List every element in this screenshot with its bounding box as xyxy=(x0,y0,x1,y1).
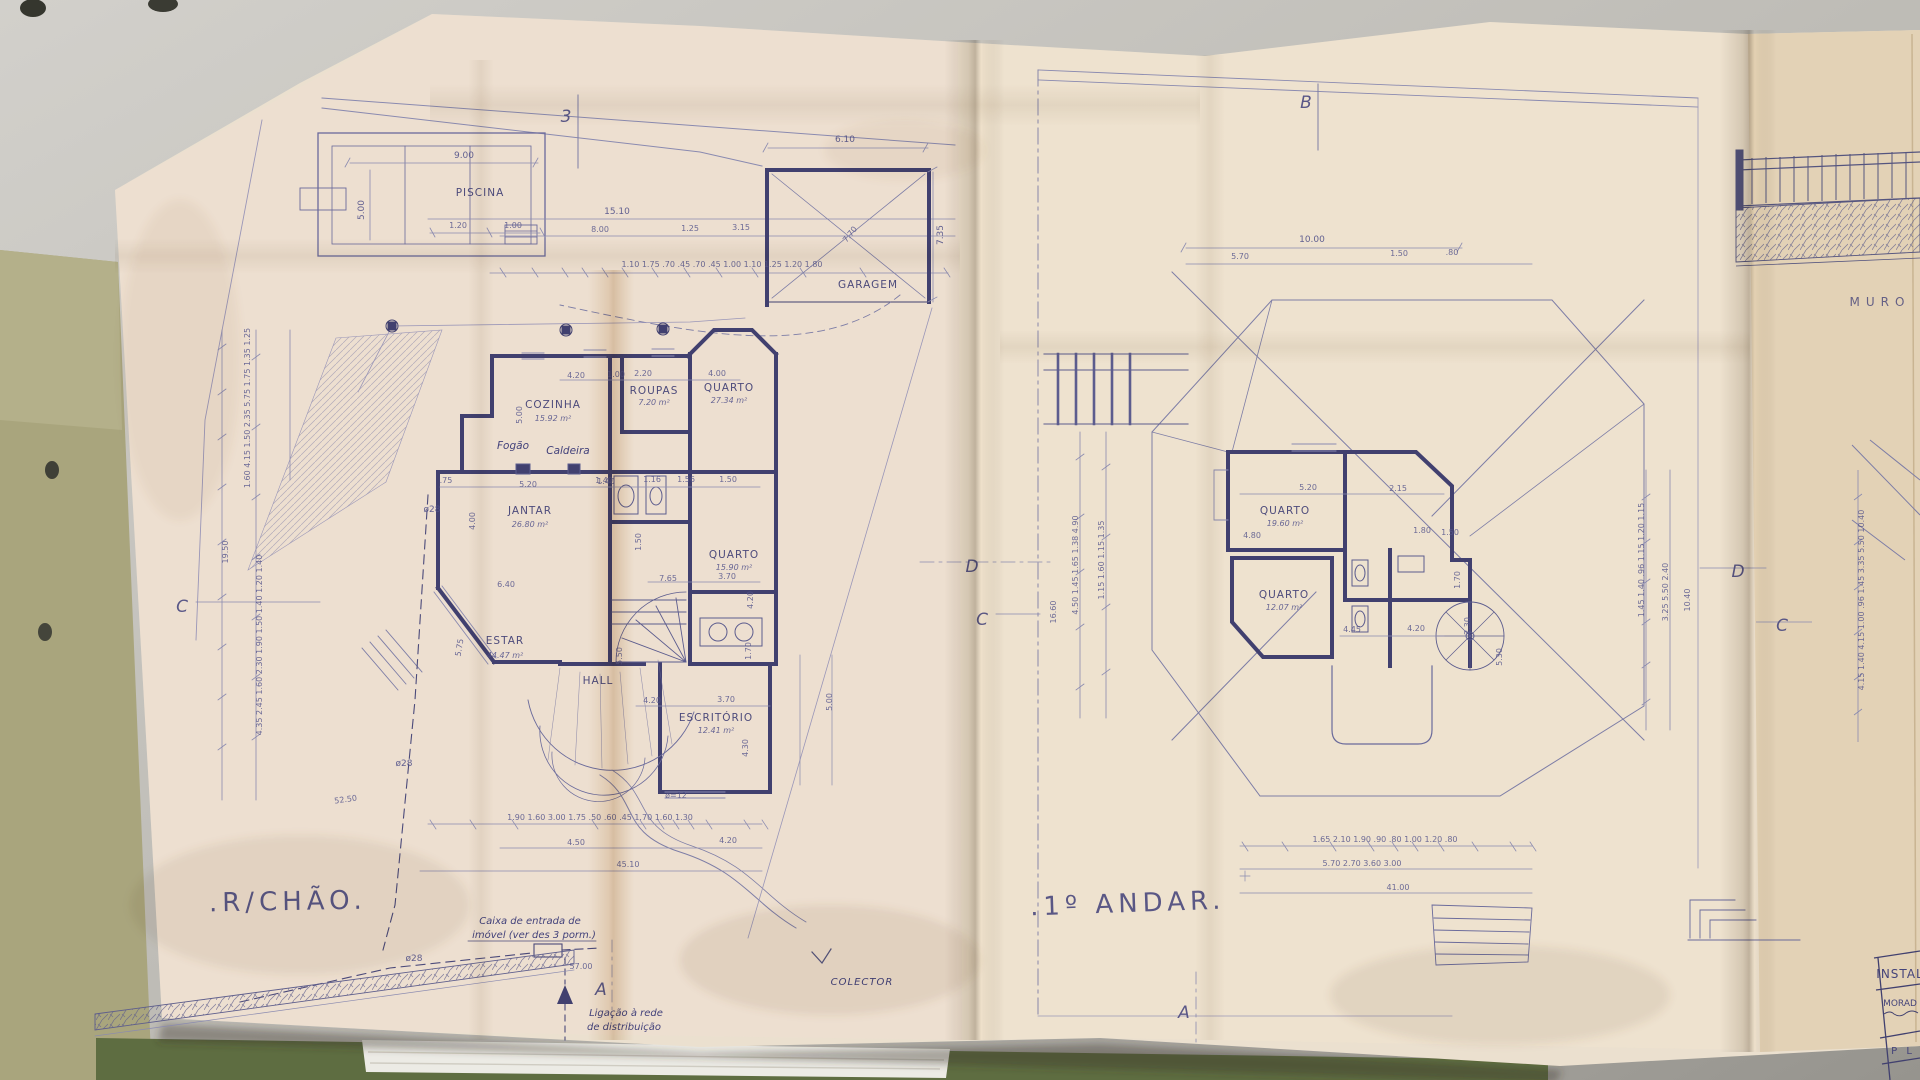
dim-chain: 19.50 xyxy=(221,541,230,564)
room-r-quarto1: QUARTO xyxy=(1260,505,1310,517)
titleblock-row2: MORAD xyxy=(1883,999,1917,1009)
marker-b: B xyxy=(1300,93,1312,113)
dim: 4.80 xyxy=(1243,531,1261,540)
dim: 4.20 xyxy=(746,591,755,609)
room-quarto1: QUARTO xyxy=(704,382,754,394)
dim: 3.70 xyxy=(718,572,736,581)
dim: 6.40 xyxy=(497,580,515,589)
room-roupas-area: 7.20 m² xyxy=(638,398,670,407)
dim: 41.00 xyxy=(1387,883,1410,892)
dim: 5.00 xyxy=(825,693,834,711)
marker-c-far: C xyxy=(1776,616,1788,636)
dim: 15.10 xyxy=(604,207,630,217)
room-escritorio-area: 12.41 m² xyxy=(698,726,735,735)
room-escritorio: ESCRITÓRIO xyxy=(679,711,753,724)
marker-c-left: C xyxy=(176,597,188,617)
dim-chain: 1.15 1.60 1.15 1.35 xyxy=(1097,521,1106,600)
dim: 1.50 xyxy=(1441,528,1459,537)
dim: 4.45 xyxy=(1343,625,1361,634)
dim-chain: 5.70 2.70 3.60 3.00 xyxy=(1323,859,1402,868)
caldeira-label: Caldeira xyxy=(546,445,589,457)
dim-chain: 1.45 1.40 .96 1.15 1.20 1.15 xyxy=(1637,503,1646,618)
blueprint-photo-svg: 3 PISCINA 9.00 5.00 1.20 1.00 15.10 8.00… xyxy=(0,0,1920,1080)
dim: 3.70 xyxy=(717,695,735,704)
o28-b: ø28 xyxy=(396,759,413,769)
room-jantar-area: 26.80 m² xyxy=(512,520,549,529)
dim: 5.30 xyxy=(1495,648,1504,666)
dim: 4.20 xyxy=(719,836,737,845)
dim: 5.00 xyxy=(357,200,367,220)
dim-chain: 3.25 5.50 2.40 xyxy=(1661,563,1670,622)
caixa-note-1: Caixa de entrada de xyxy=(479,916,581,927)
binder-hole xyxy=(45,461,59,479)
dim: .75 xyxy=(440,476,453,485)
room-quarto2-area: 15.90 m² xyxy=(716,563,753,572)
dim: 1.00 xyxy=(504,221,522,230)
titleblock-row3: P L xyxy=(1891,1046,1915,1057)
dim: 2.20 xyxy=(634,369,652,378)
dim: 10.40 xyxy=(1683,589,1692,612)
dim: 5.00 xyxy=(515,406,524,424)
room-r-quarto1-area: 19.60 m² xyxy=(1267,519,1304,528)
dim: 2.30 xyxy=(1463,617,1472,635)
dim: 10.00 xyxy=(1299,235,1325,245)
room-r-quarto2-area: 12.07 m² xyxy=(1266,603,1303,612)
dim: 5.70 xyxy=(1231,252,1249,261)
titleblock-row1: INSTAL xyxy=(1876,967,1920,981)
marker-a-right: A xyxy=(1177,1003,1190,1023)
dim: 7.65 xyxy=(659,574,677,583)
dim: 4.30 xyxy=(741,739,750,757)
dim: 3.15 xyxy=(732,223,750,232)
dim-chain: 4.35 2.45 1.60 2.30 1.90 1.50 1.40 1.20 … xyxy=(255,555,264,736)
dim: 5.20 xyxy=(1299,483,1317,492)
o12-label: ø=12 xyxy=(665,791,687,800)
dim: 1.50 xyxy=(634,533,643,551)
room-r-quarto2: QUARTO xyxy=(1259,589,1309,601)
dim: 1.20 xyxy=(449,221,467,230)
dim: 16.60 xyxy=(1049,601,1058,624)
dim: 1.50 xyxy=(719,475,737,484)
room-quarto2: QUARTO xyxy=(709,549,759,561)
o28-a: ø28 xyxy=(424,505,441,515)
dim: 1.56 xyxy=(677,475,695,484)
binder-hole xyxy=(38,623,52,641)
dim: 1.50 xyxy=(1390,249,1408,258)
dim: 1.70 xyxy=(1453,571,1462,589)
room-cozinha: COZINHA xyxy=(525,399,581,411)
dim: 4.00 xyxy=(708,369,726,378)
dim: 8.00 xyxy=(591,225,609,234)
room-roupas: ROUPAS xyxy=(630,385,679,397)
room-cozinha-area: 15.92 m² xyxy=(535,414,572,423)
dim-chain: 4.50 1.45 1.65 1.38 4.90 xyxy=(1071,515,1080,614)
dim-chain: 4.15 1.40 4.15 1.00 .96 1.45 3.35 5.50 1… xyxy=(1857,510,1866,691)
room-jantar: JANTAR xyxy=(507,505,552,517)
dim: .80 xyxy=(1446,248,1459,257)
dim: 2.15 xyxy=(1389,484,1407,493)
garagem-label: GARAGEM xyxy=(838,279,898,291)
dim: 1.70 xyxy=(744,642,753,660)
dim: 4.20 xyxy=(1407,624,1425,633)
photo-of-blueprint: 3 PISCINA 9.00 5.00 1.20 1.00 15.10 8.00… xyxy=(0,0,1920,1080)
fogao-label: Fogão xyxy=(497,440,529,452)
dim: 4.50 xyxy=(567,838,585,847)
dim-chain: 1.65 2.10 1.90 .90 .80 1.00 1.20 .80 xyxy=(1312,835,1457,844)
dim: 1.25 xyxy=(681,224,699,233)
dim: 1.80 xyxy=(1413,526,1431,535)
dim: 5.20 xyxy=(519,480,537,489)
dim: 1.16 xyxy=(643,475,661,484)
room-quarto1-area: 27.34 m² xyxy=(711,396,748,405)
dim: 4.20 xyxy=(643,696,661,705)
dim: 4.20 xyxy=(567,371,585,380)
dim-chain: 1.60 4.15 1.50 2.35 5.75 1.75 1.35 1.25 xyxy=(243,328,252,488)
muro-label: MURO xyxy=(1850,295,1911,309)
